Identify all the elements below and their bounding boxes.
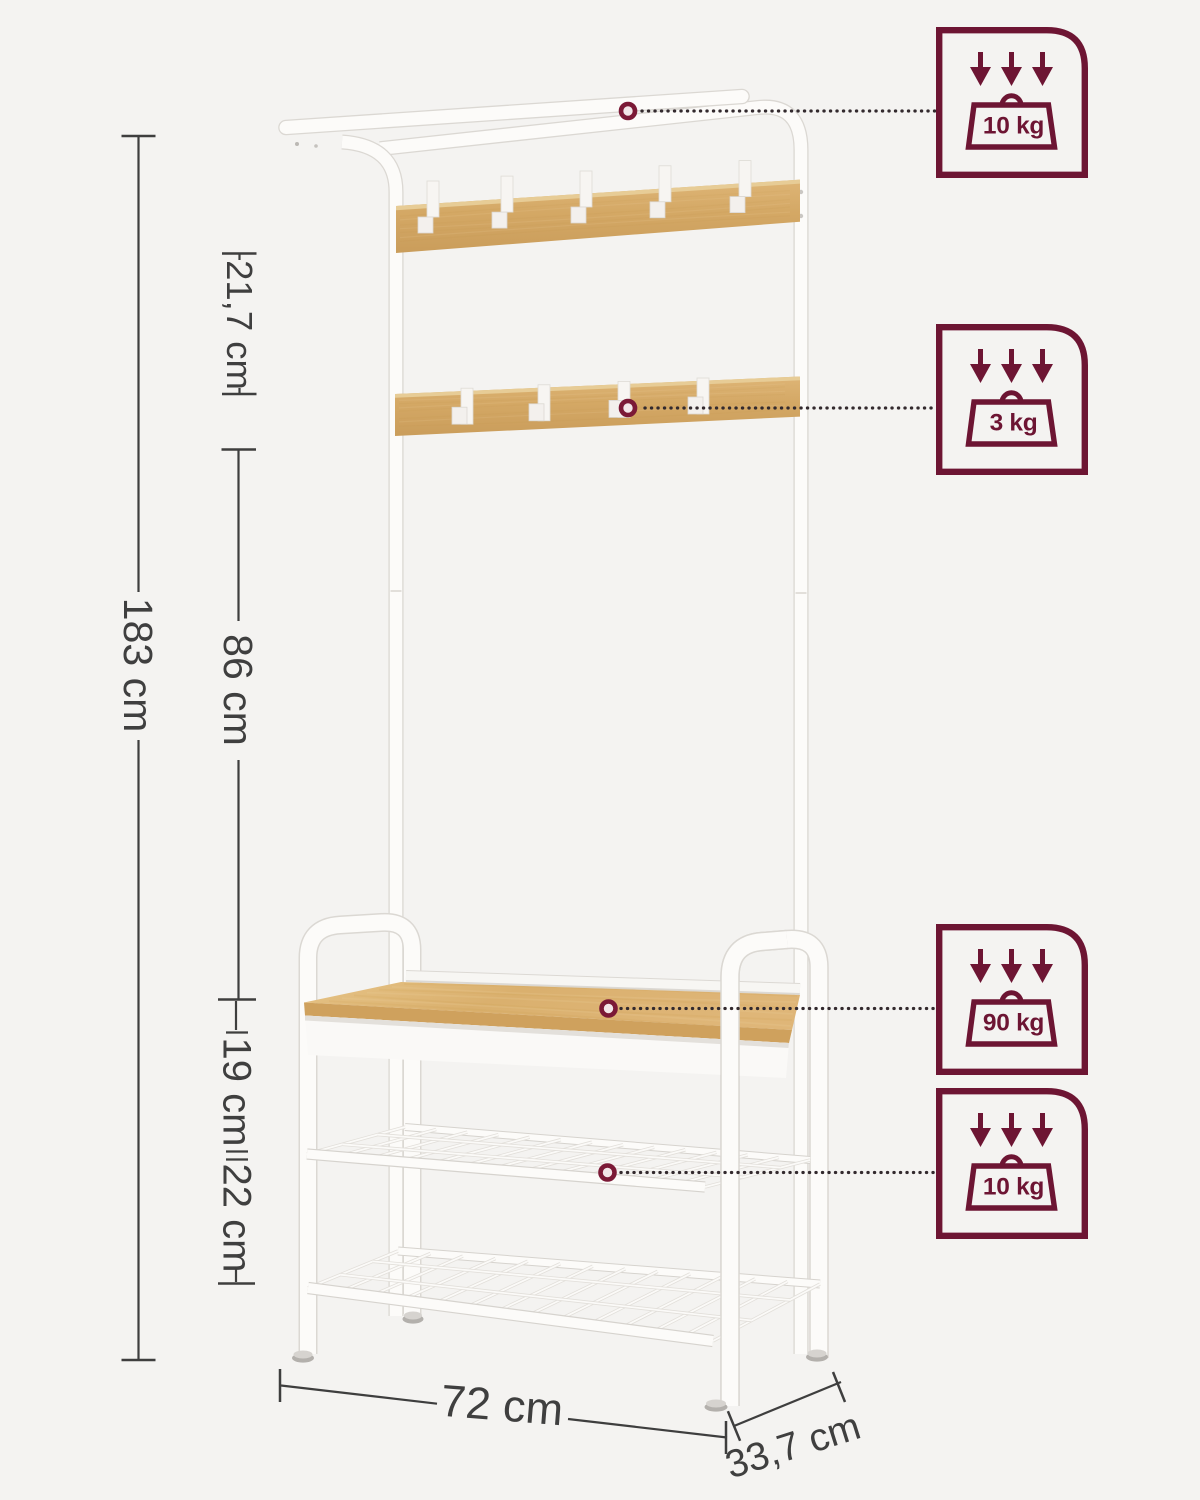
svg-text:72 cm: 72 cm	[439, 1375, 565, 1435]
svg-text:21,7 cm: 21,7 cm	[219, 260, 260, 390]
svg-text:3 kg: 3 kg	[990, 410, 1038, 437]
svg-text:19 cm: 19 cm	[215, 1038, 259, 1147]
svg-text:183 cm: 183 cm	[115, 598, 161, 732]
svg-text:22 cm: 22 cm	[215, 1164, 259, 1273]
svg-text:10 kg: 10 kg	[983, 113, 1044, 140]
svg-text:86 cm: 86 cm	[215, 634, 261, 746]
svg-text:10 kg: 10 kg	[983, 1174, 1044, 1201]
svg-text:90 kg: 90 kg	[983, 1010, 1044, 1037]
